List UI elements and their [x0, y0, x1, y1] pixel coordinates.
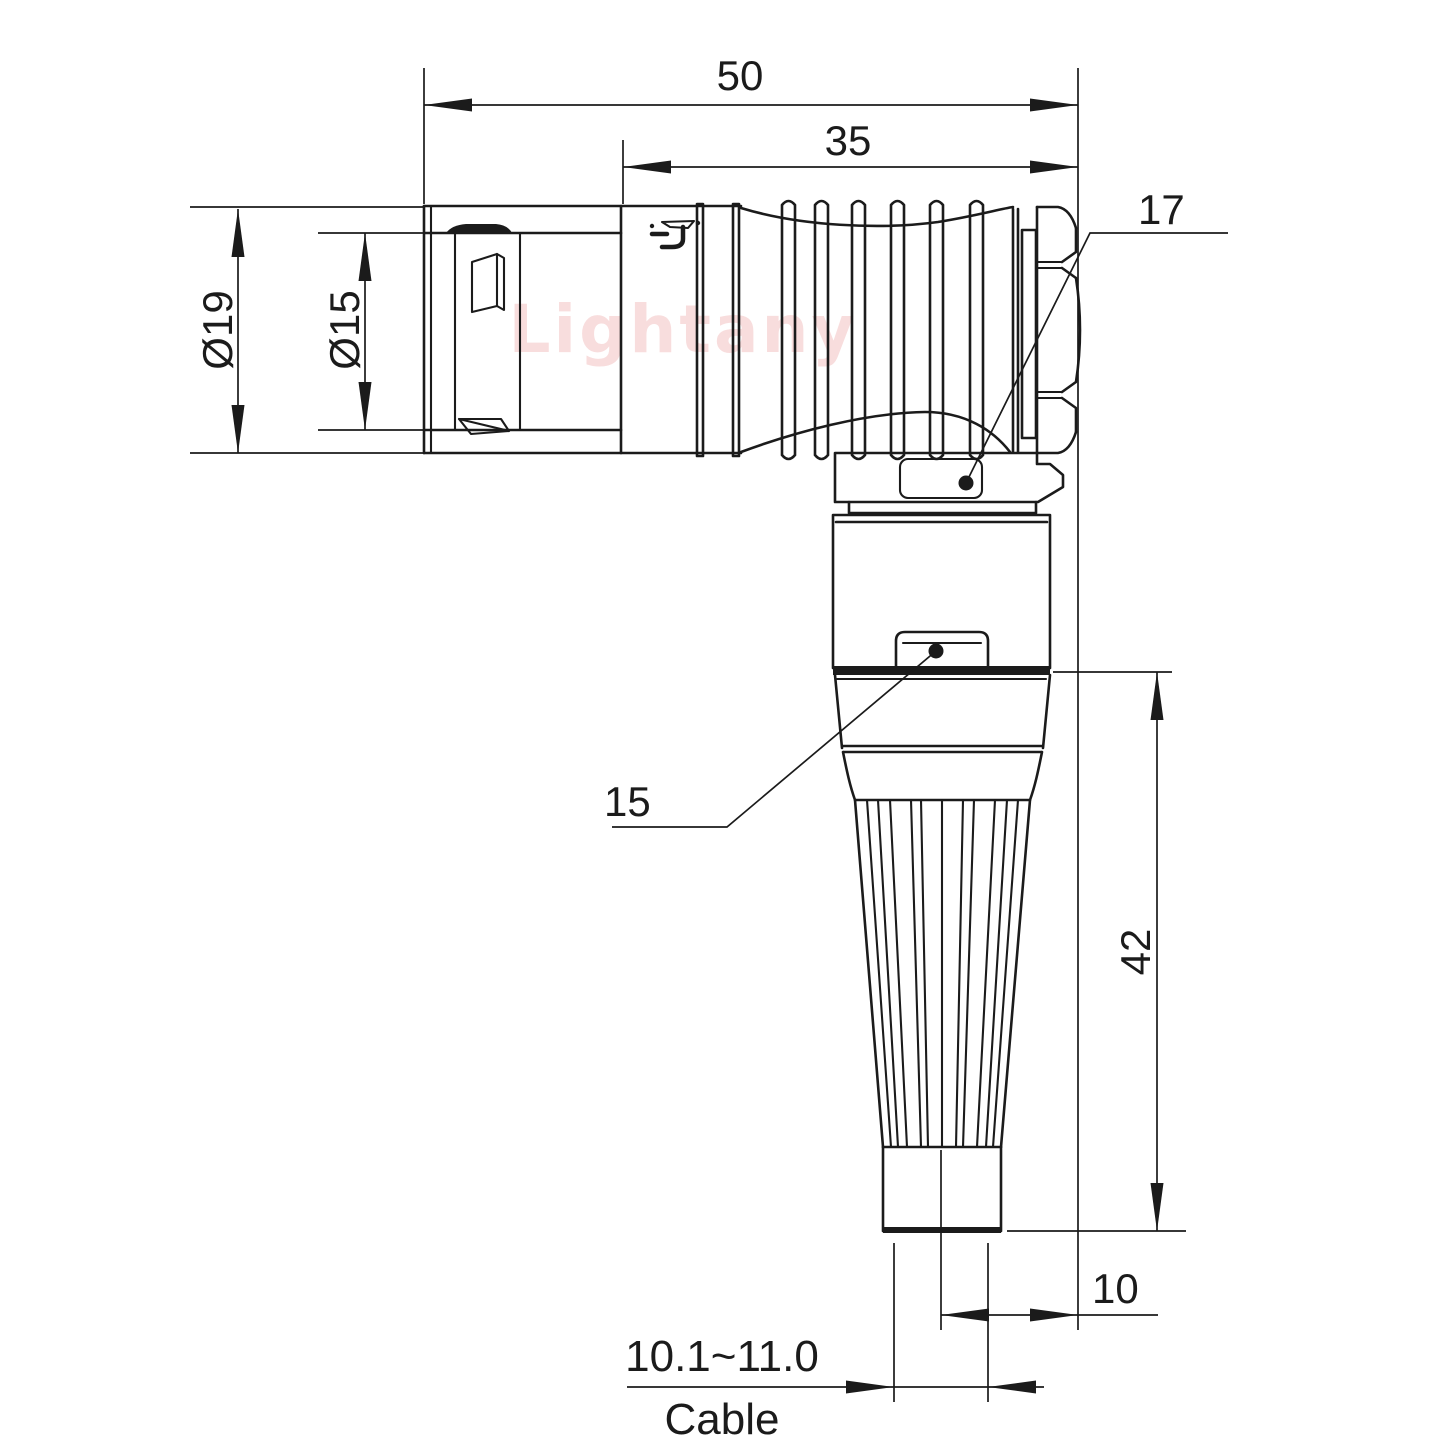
dim-10-label: 10 [1092, 1265, 1139, 1312]
leader-nut-17: 17 [959, 186, 1229, 491]
dimension-elbow-height: 42 [1112, 672, 1164, 1231]
part-coupling-nut [1013, 207, 1080, 453]
dimension-outer-diameter: Ø19 [194, 209, 245, 453]
latch-hook [459, 419, 509, 434]
part-strain-relief [843, 752, 1042, 1147]
technical-drawing: Lightany [0, 0, 1440, 1440]
drawing-canvas: Lightany [0, 0, 1440, 1440]
callout-15-label: 15 [604, 778, 651, 825]
dimension-cable-offset: 10 [941, 1265, 1158, 1322]
callout-17-label: 17 [1138, 186, 1185, 233]
engraving-mark [650, 221, 700, 247]
dimension-inner-diameter: Ø15 [321, 233, 372, 430]
part-cable-collar [883, 1147, 1001, 1231]
part-elbow [833, 453, 1063, 752]
dim-cable-range-label: 10.1~11.0 [625, 1332, 819, 1381]
leader-dot [959, 476, 974, 491]
dim-dia15-label: Ø15 [321, 290, 368, 369]
part-grip [741, 201, 1013, 459]
dim-35-label: 35 [825, 117, 872, 164]
dim-dia19-label: Ø19 [194, 290, 241, 369]
watermark: Lightany [508, 291, 857, 368]
cable-label: Cable [665, 1395, 780, 1440]
dim-50-label: 50 [717, 52, 764, 99]
dimension-cable-diameter: 10.1~11.0 Cable [625, 1332, 1044, 1440]
leader-dot [929, 644, 944, 659]
dimension-overall-length: 50 [424, 52, 1078, 112]
dimension-grip-length: 35 [623, 117, 1078, 174]
latch-spring [446, 224, 512, 233]
dim-42-label: 42 [1112, 929, 1159, 976]
keyway-window [472, 254, 497, 312]
